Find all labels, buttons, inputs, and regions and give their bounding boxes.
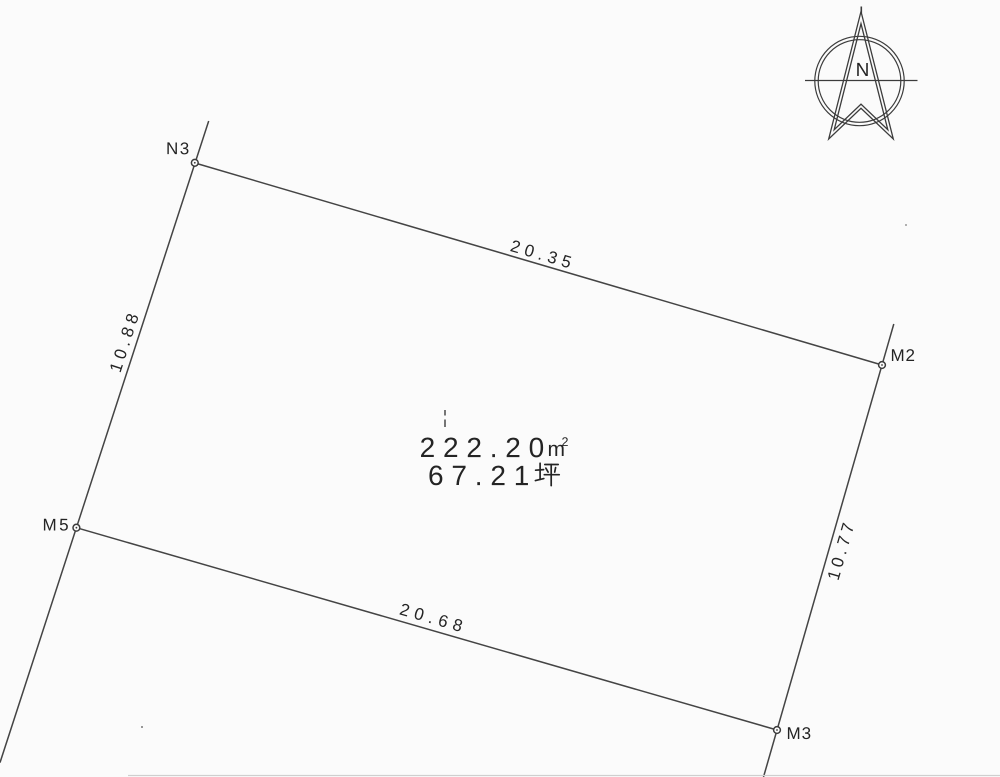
svg-text:M2: M2 [890, 346, 915, 365]
svg-text:N3: N3 [166, 139, 191, 158]
svg-text:222.20: 222.20 [420, 432, 552, 463]
svg-text:67.21: 67.21 [428, 460, 537, 491]
svg-text:N: N [856, 60, 870, 81]
svg-text:M5: M5 [42, 516, 71, 535]
svg-text:M3: M3 [786, 724, 812, 743]
svg-text:2: 2 [561, 435, 568, 449]
